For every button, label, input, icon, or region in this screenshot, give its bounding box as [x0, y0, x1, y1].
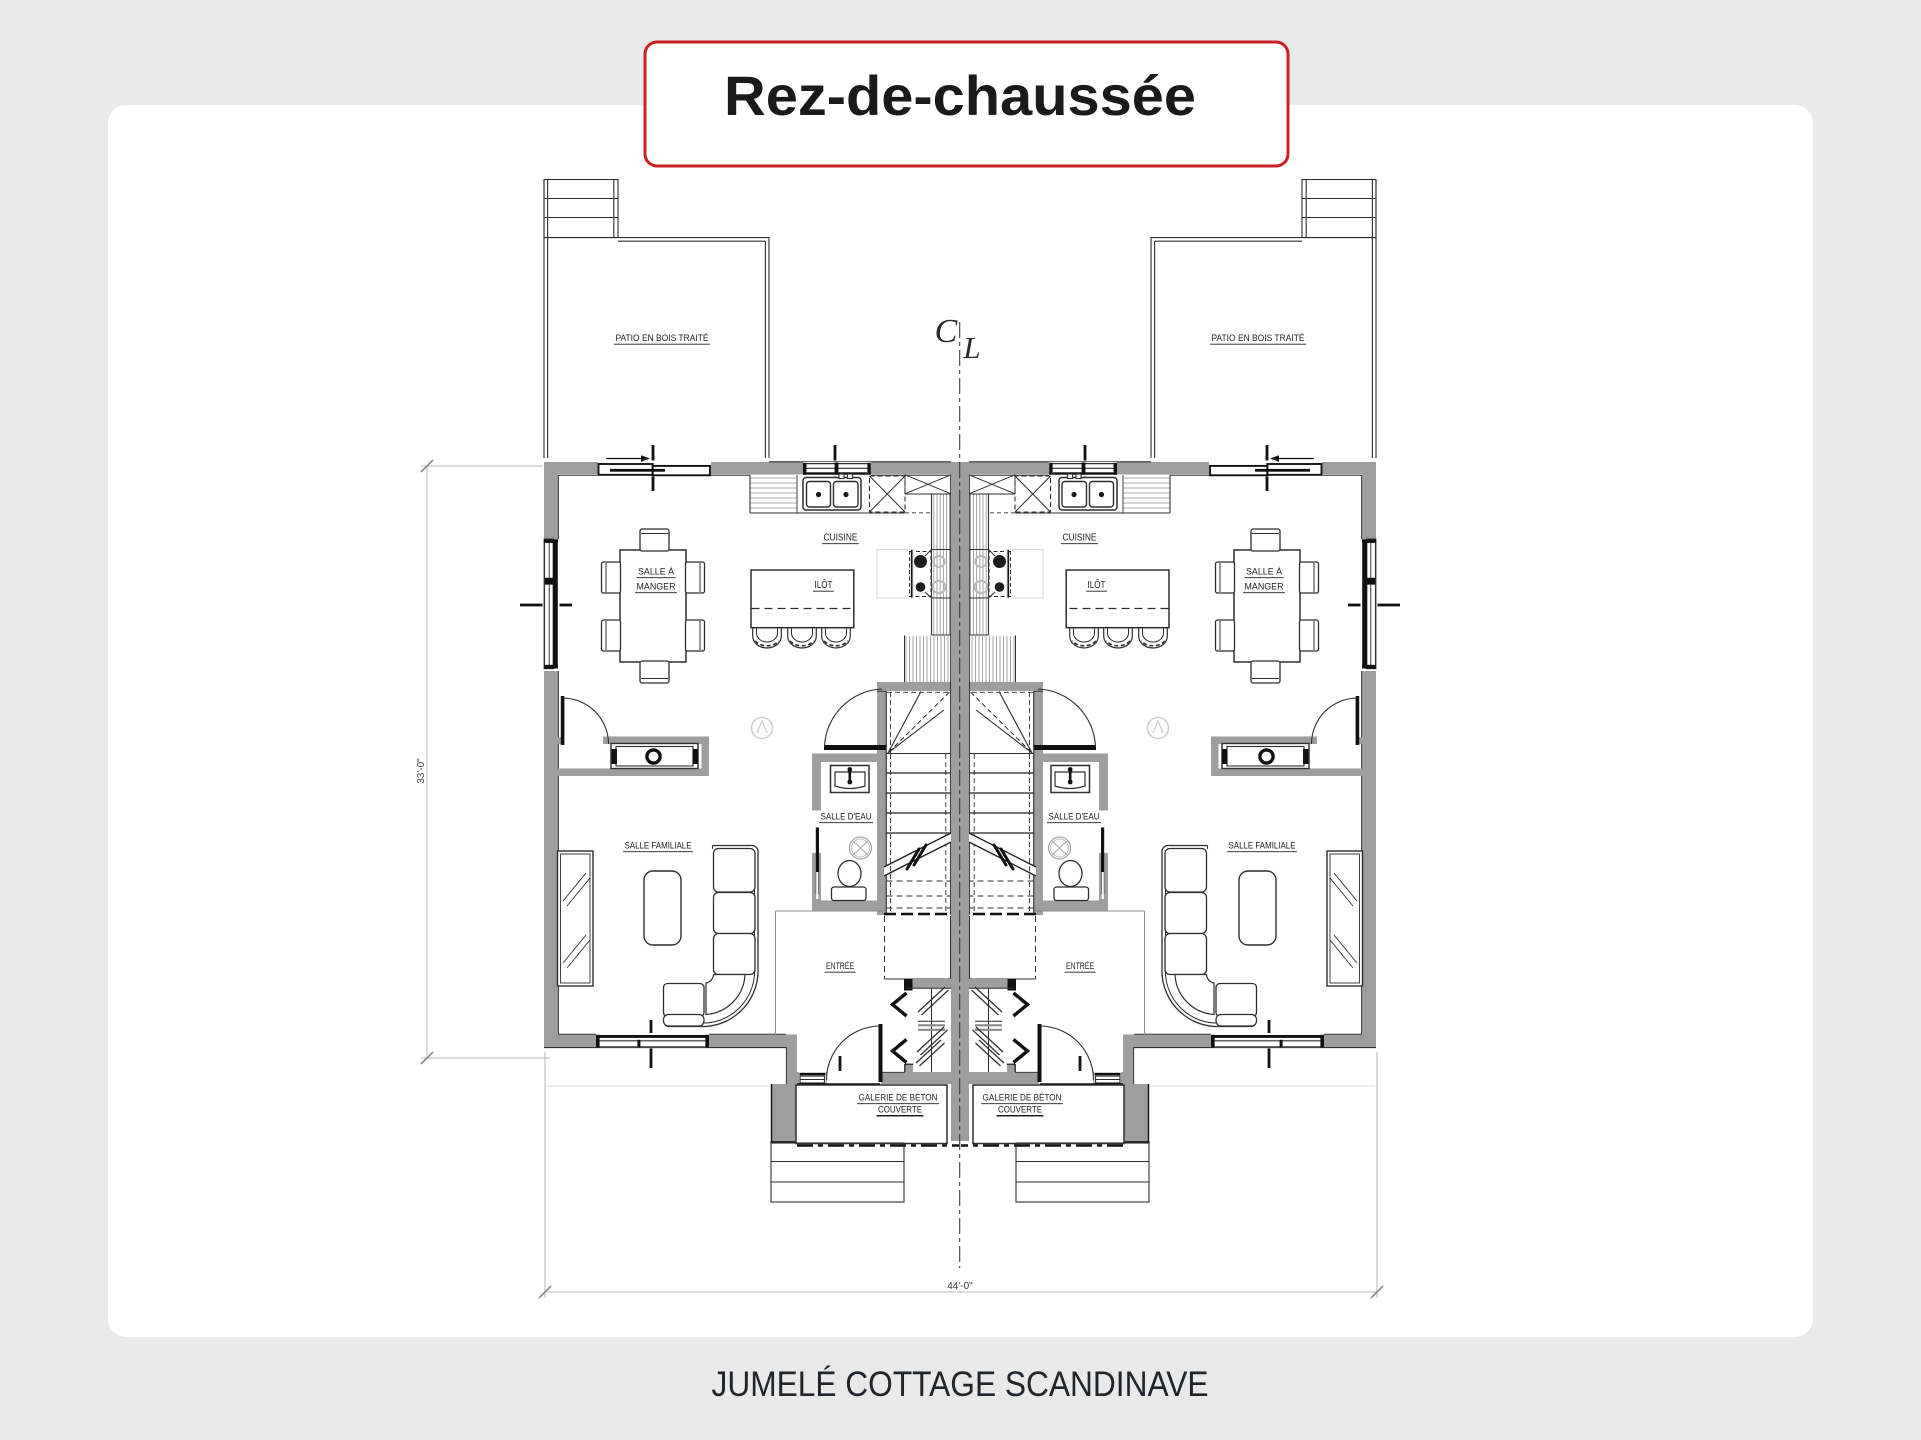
svg-text:SALLE D'EAU: SALLE D'EAU	[1049, 812, 1100, 822]
svg-text:SALLE À: SALLE À	[638, 567, 675, 578]
svg-text:ENTRÉE: ENTRÉE	[1066, 961, 1094, 971]
svg-text:PATIO EN BOIS TRAITÉ: PATIO EN BOIS TRAITÉ	[1212, 333, 1305, 344]
svg-text:CUISINE: CUISINE	[1063, 533, 1097, 544]
svg-text:JUMELÉ COTTAGE SCANDINAVE: JUMELÉ COTTAGE SCANDINAVE	[712, 1365, 1209, 1404]
svg-text:GALERIE DE BÉTON: GALERIE DE BÉTON	[983, 1093, 1062, 1104]
svg-text:SALLE À: SALLE À	[1246, 567, 1283, 578]
svg-text:MANGER: MANGER	[637, 582, 676, 593]
svg-text:44'-0": 44'-0"	[947, 1281, 973, 1292]
svg-text:33'-0": 33'-0"	[416, 758, 427, 784]
svg-text:CUISINE: CUISINE	[824, 533, 858, 544]
svg-text:ILÔT: ILÔT	[815, 580, 833, 591]
svg-text:SALLE FAMILIALE: SALLE FAMILIALE	[1229, 841, 1296, 852]
svg-text:GALERIE DE BÉTON: GALERIE DE BÉTON	[859, 1093, 938, 1104]
svg-text:Rez-de-chaussée: Rez-de-chaussée	[724, 64, 1196, 127]
svg-text:L: L	[962, 330, 980, 365]
svg-text:SALLE D'EAU: SALLE D'EAU	[821, 812, 872, 822]
svg-text:SALLE FAMILIALE: SALLE FAMILIALE	[625, 841, 692, 852]
svg-text:COUVERTE: COUVERTE	[998, 1105, 1042, 1116]
svg-text:MANGER: MANGER	[1245, 582, 1284, 593]
svg-text:C: C	[935, 313, 958, 350]
svg-text:PATIO EN BOIS TRAITÉ: PATIO EN BOIS TRAITÉ	[616, 333, 709, 344]
svg-text:ILÔT: ILÔT	[1088, 580, 1106, 591]
svg-text:ENTRÉE: ENTRÉE	[826, 961, 854, 971]
svg-text:COUVERTE: COUVERTE	[878, 1105, 922, 1116]
